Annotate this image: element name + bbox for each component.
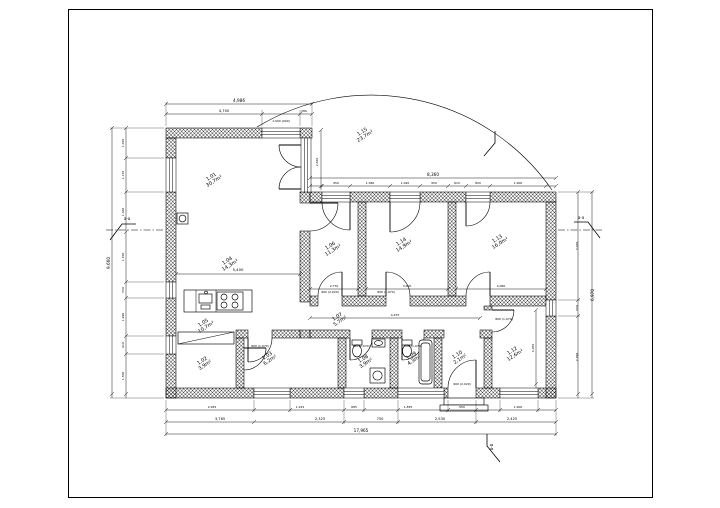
dimension-text: 4,700: [219, 109, 230, 113]
dimensions-layer: [110, 102, 594, 436]
dimension-text: 1,500 (900): [272, 119, 290, 123]
room-label: 1.1414,9m²: [392, 235, 413, 254]
dimension-text: 3,670: [575, 242, 579, 251]
dimension-text: 8,360: [427, 172, 439, 177]
section-label: a-a: [124, 216, 131, 221]
dimension-text: 750: [377, 417, 385, 421]
drawing-sheet: 1.0130,7m²1.0414,3m²1.0510,7m²1.1523,7m²…: [0, 0, 720, 508]
dimension-text: 685: [351, 405, 357, 409]
room-label: 1.0130,7m²: [202, 170, 223, 189]
dimension-text: 1,360: [121, 208, 125, 217]
dimension-text: 550: [575, 305, 579, 311]
section-label: a-a: [578, 215, 585, 220]
dimension-text: 800 (1,970): [251, 344, 269, 348]
dimension-text: 1,500: [121, 372, 125, 381]
dimension-text: 2,790: [575, 353, 579, 362]
dimension-text: 17,965: [354, 428, 369, 433]
dimension-text: 950: [431, 181, 437, 185]
dimension-text: 286: [301, 109, 307, 113]
dimension-text: 1,170: [121, 171, 125, 180]
dimension-text: 1,225: [296, 405, 305, 409]
dimension-text: 2,630: [315, 158, 319, 167]
dimension-text: 700 (1,970): [352, 344, 370, 348]
room-label: 1.1212,6m²: [503, 344, 524, 363]
dimension-text: 5,400: [233, 267, 244, 272]
dimension-text: 2,530: [435, 417, 446, 421]
doors-layer: [244, 145, 514, 388]
room-label: 1.1523,7m²: [353, 125, 374, 144]
dimension-text: 1,835: [404, 405, 413, 409]
dimension-text: 1,290: [121, 313, 125, 322]
dimension-text: 1,900: [514, 405, 523, 409]
dimension-text: 4,060: [497, 284, 506, 288]
dimension-text: 6,970: [590, 289, 595, 301]
dimension-text: 4,475: [391, 313, 400, 317]
dimension-text: 1,900: [514, 181, 523, 185]
dimension-text: 4,986: [233, 98, 245, 103]
dimension-text: 900 (2,020): [453, 382, 471, 386]
room-label: 1.036,2m²: [260, 350, 279, 367]
dimension-text: 610: [454, 181, 460, 185]
floor-plan-canvas: 1.0130,7m²1.0414,3m²1.0510,7m²1.1523,7m²…: [0, 0, 720, 508]
dimension-text: 950: [333, 181, 339, 185]
dimension-text: 2,425: [507, 417, 517, 421]
dimension-text: 900 (2,020): [321, 290, 339, 294]
dimension-text: 950: [459, 405, 465, 409]
dimension-text: 2,955: [208, 405, 217, 409]
dimension-text: 9,660: [106, 257, 111, 269]
dimension-text: 3,765: [215, 417, 225, 421]
dimension-text: 2,325: [315, 417, 325, 421]
dimension-text: 820: [475, 181, 481, 185]
room-label: 1.1316,0m²: [488, 232, 509, 251]
dimension-text: 550: [121, 287, 125, 293]
dimension-text: 700 (1,970): [404, 344, 422, 348]
dimension-text: 3,000: [403, 284, 412, 288]
dimension-text: 800 (1,970): [377, 290, 395, 294]
dimension-text: 4,050: [531, 344, 535, 353]
room-label: 1.023,9m²: [195, 355, 214, 372]
dimension-text: 610: [121, 342, 125, 348]
dimension-text: 1,700: [121, 253, 125, 262]
room-label: 1.075,7m²: [330, 311, 349, 328]
room-label: 1.102,1m²: [450, 349, 469, 366]
dimension-text: 1,360: [366, 181, 375, 185]
section-label: b-b: [489, 443, 494, 450]
dimension-text: 800 (1,970): [495, 317, 513, 321]
dimension-text: 1,030: [121, 139, 125, 148]
dimension-text: 2,770: [330, 284, 339, 288]
room-label: 1.0611,3m²: [321, 239, 342, 258]
dimension-text: 1,020: [401, 181, 410, 185]
